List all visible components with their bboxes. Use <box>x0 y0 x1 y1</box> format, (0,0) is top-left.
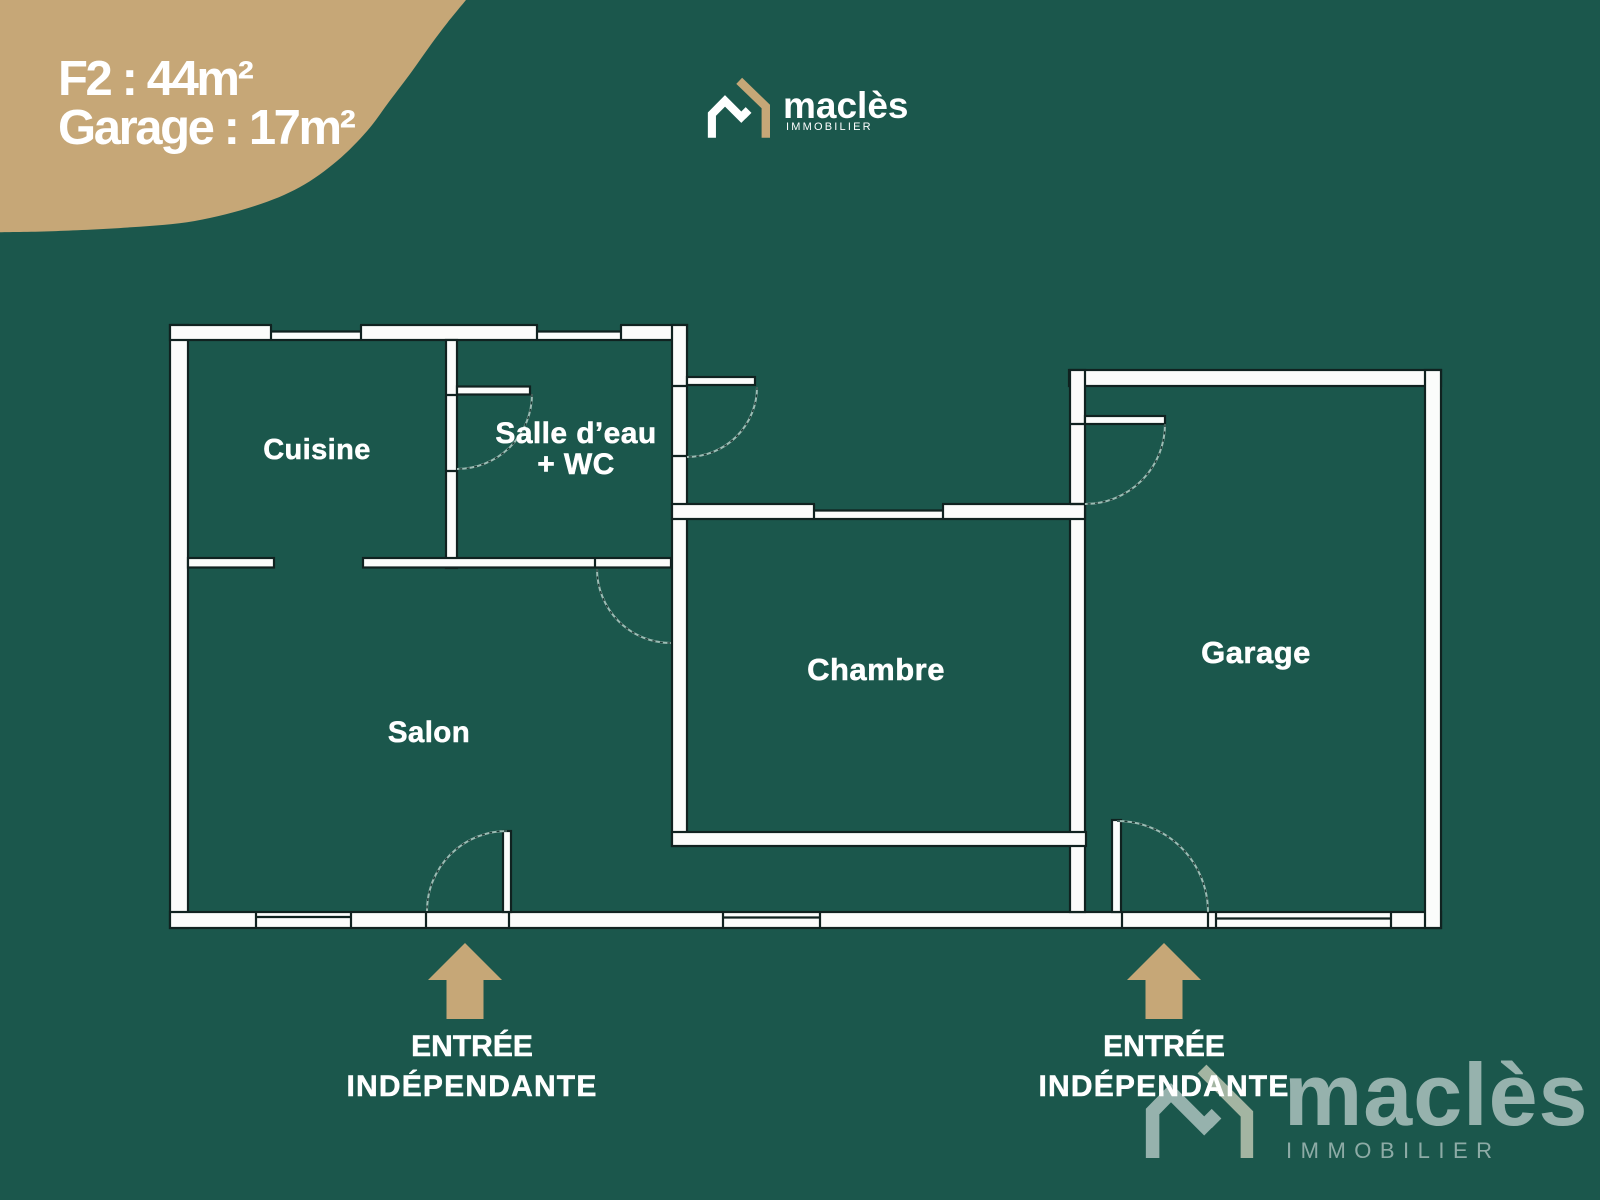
svg-text:+ WC: + WC <box>537 448 614 481</box>
svg-text:Salle d’eau: Salle d’eau <box>495 417 656 450</box>
svg-text:INDÉPENDANTE: INDÉPENDANTE <box>346 1069 597 1103</box>
svg-text:INDÉPENDANTE: INDÉPENDANTE <box>1038 1069 1289 1103</box>
svg-text:Garage: Garage <box>1201 635 1311 670</box>
svg-text:ENTRÉE: ENTRÉE <box>411 1029 533 1063</box>
svg-text:Chambre: Chambre <box>807 652 945 687</box>
svg-text:ENTRÉE: ENTRÉE <box>1103 1029 1225 1063</box>
svg-text:F2 : 44m²: F2 : 44m² <box>58 52 254 106</box>
svg-text:IMMOBILIER: IMMOBILIER <box>786 121 873 133</box>
svg-text:Cuisine: Cuisine <box>263 434 371 466</box>
svg-text:Garage : 17m²: Garage : 17m² <box>58 101 356 155</box>
svg-text:Salon: Salon <box>388 716 470 749</box>
svg-text:IMMOBILIER: IMMOBILIER <box>1286 1138 1501 1163</box>
svg-text:maclès: maclès <box>783 85 909 126</box>
svg-text:maclès: maclès <box>1284 1045 1588 1144</box>
